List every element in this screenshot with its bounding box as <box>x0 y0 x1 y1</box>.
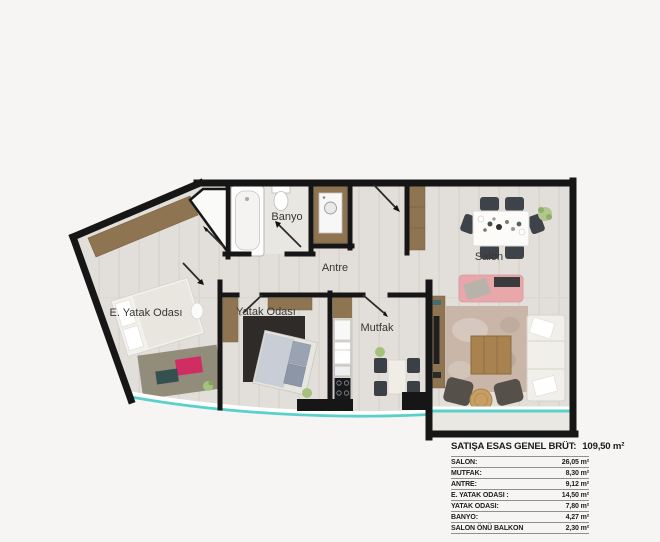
chair <box>191 303 203 319</box>
wardrobe <box>223 298 238 342</box>
table-total: 109,50 m² <box>582 441 624 452</box>
table-row: ANTRE: 9,12 m² <box>451 478 589 489</box>
table-row: MUTFAK: 8,30 m² <box>451 467 589 478</box>
table-row: SALON: 26,05 m² <box>451 456 589 467</box>
area-table-rows: SALON: 26,05 m² MUTFAK: 8,30 m² ANTRE: 9… <box>451 456 589 534</box>
label-banyo: Banyo <box>271 211 302 223</box>
plant-icon <box>302 388 312 398</box>
tv <box>434 316 440 364</box>
label-mutfak: Mutfak <box>360 322 394 334</box>
coffee-table <box>471 336 511 374</box>
plant-icon <box>375 347 385 357</box>
chair <box>374 381 387 396</box>
table-title: SATIŞA ESAS GENEL BRÜT: <box>451 441 576 452</box>
chair <box>480 197 499 211</box>
area-table: SATIŞA ESAS GENEL BRÜT: 109,50 m² SALON:… <box>451 441 589 534</box>
bed <box>253 330 318 395</box>
label-e-yatak-odasi: E. Yatak Odası <box>110 307 183 319</box>
table-row: SALON ÖNÜ BALKON 2,30 m² <box>451 522 589 533</box>
table-row: YATAK ODASI: 7,80 m² <box>451 500 589 511</box>
wardrobe <box>409 186 425 250</box>
label-yatak-odasi: Yatak Odası <box>236 306 296 318</box>
area-table-title: SATIŞA ESAS GENEL BRÜT: 109,50 m² <box>451 441 589 456</box>
table-row: E. YATAK ODASI : 14,50 m² <box>451 489 589 500</box>
label-salon: Salon <box>475 251 503 263</box>
table-row: BANYO: 4,27 m² <box>451 511 589 522</box>
kitchen-table <box>388 360 406 394</box>
floor-plan-page: Banyo Antre Salon E. Yatak Odası Yatak O… <box>0 0 660 542</box>
salon-balcony-floor <box>429 410 573 434</box>
sink <box>335 366 351 376</box>
chair <box>407 358 420 373</box>
wall-block <box>297 399 353 411</box>
chair <box>505 245 524 259</box>
oven <box>335 342 351 364</box>
fridge <box>335 320 351 340</box>
laundry-niche <box>314 186 347 243</box>
plant-icon <box>209 381 214 386</box>
chair <box>374 358 387 373</box>
chair <box>505 197 524 211</box>
cabinet <box>333 296 352 318</box>
label-antre: Antre <box>322 262 348 274</box>
wall-block <box>402 392 430 410</box>
